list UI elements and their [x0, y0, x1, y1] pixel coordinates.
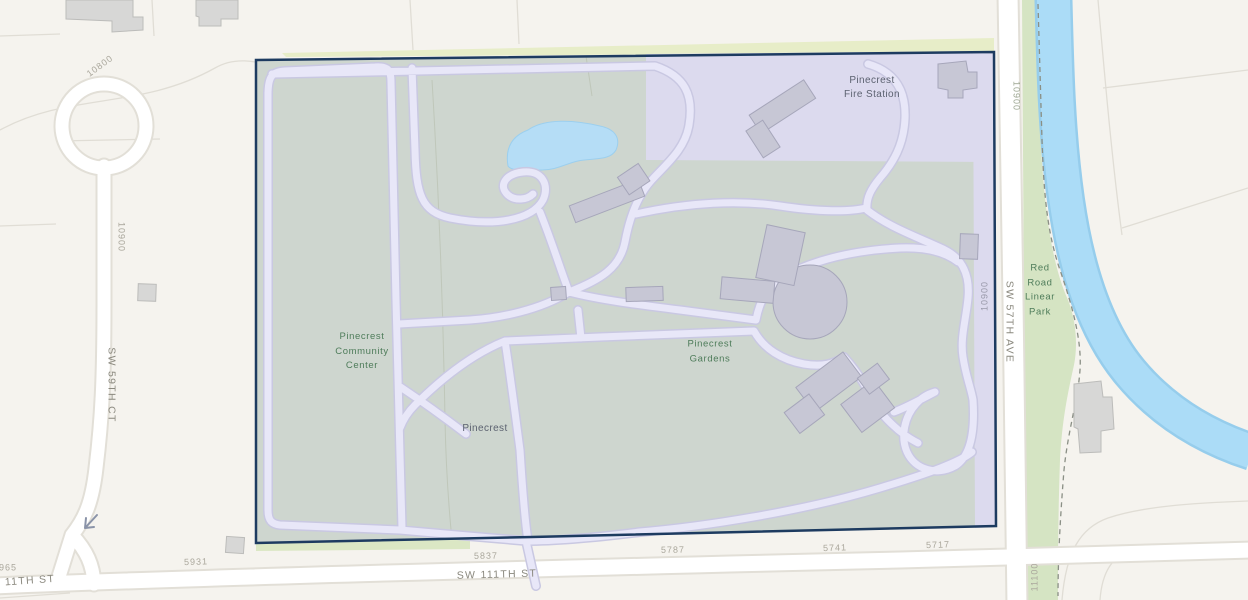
map-graphics: [0, 0, 1248, 600]
shed-footprint: [138, 284, 157, 302]
garden-building-mid: [626, 286, 663, 301]
east-parcel-strip: [973, 51, 995, 528]
building-near-avenue: [960, 234, 979, 260]
building-west-of-circle: [720, 277, 775, 304]
map-canvas[interactable]: Pinecrest Fire Station Pinecrest Communi…: [0, 0, 1248, 600]
shed-footprint: [225, 536, 244, 553]
kiosk-building: [551, 286, 567, 300]
